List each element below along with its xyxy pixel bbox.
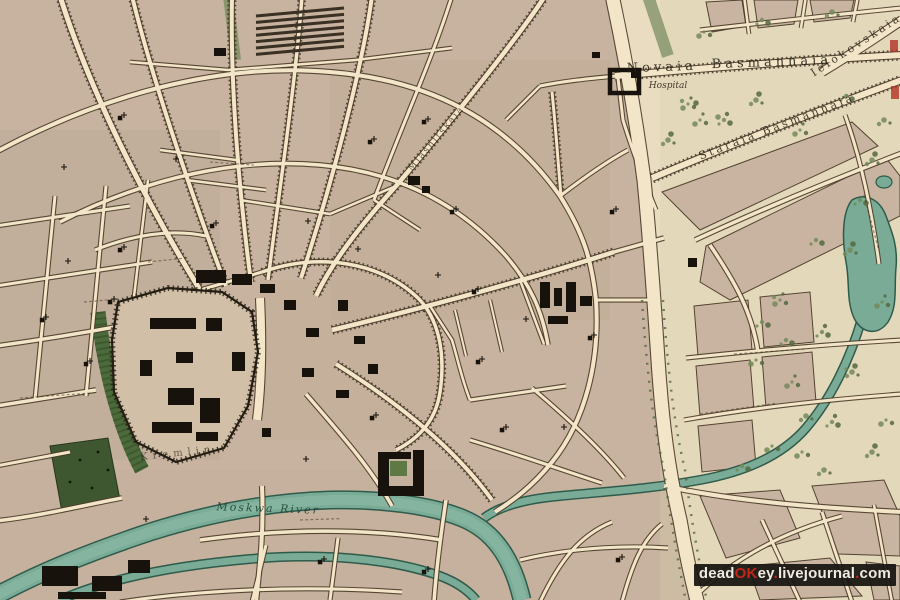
tree (853, 202, 856, 205)
building-wing (413, 450, 424, 496)
building (338, 300, 348, 311)
tree (878, 421, 884, 427)
tree (784, 301, 788, 305)
tree (745, 466, 751, 472)
tree (872, 151, 878, 157)
church-mark (500, 428, 505, 433)
tree (798, 128, 801, 131)
tree (698, 118, 701, 121)
tree (876, 453, 879, 456)
church-mark (108, 300, 113, 305)
tree (781, 292, 784, 295)
tree (796, 383, 800, 387)
tree (722, 118, 726, 122)
watermark-part: OK (735, 565, 758, 582)
building (422, 186, 430, 193)
building (232, 274, 252, 285)
building (232, 352, 245, 371)
tree (725, 112, 729, 116)
map-canvas: NovaiaBasmannaiaHospitalStaraia Basmanna… (0, 0, 900, 600)
tree (760, 18, 764, 22)
church-mark (476, 360, 481, 365)
church-mark (84, 362, 89, 367)
tree (881, 117, 887, 123)
tree (760, 320, 764, 324)
tree (815, 334, 818, 337)
tree (794, 453, 800, 459)
watermark-part: livejournal (778, 565, 855, 582)
city-block (762, 352, 816, 408)
watermark-part: ey (758, 565, 774, 582)
building (302, 368, 314, 377)
pond-arm (876, 176, 892, 188)
building (554, 288, 562, 306)
tree (756, 91, 762, 97)
watermark: deadOKey.livejournal.com (694, 564, 896, 586)
tree (717, 122, 720, 125)
map-label-hospital: Hospital (648, 81, 688, 91)
tree (825, 332, 831, 338)
tree (672, 141, 675, 144)
tree (845, 374, 849, 378)
tree (764, 447, 770, 453)
watermark-part: dead (699, 565, 735, 582)
building (206, 318, 222, 331)
tree (701, 112, 704, 115)
tree (821, 467, 827, 473)
tree (854, 251, 857, 254)
tree (890, 421, 894, 425)
tree (704, 121, 708, 125)
tree (749, 102, 753, 106)
tree (886, 303, 890, 307)
tree (865, 454, 869, 458)
courtyard-garden (390, 461, 407, 476)
tree (755, 324, 758, 327)
scan-artifact (891, 86, 899, 99)
building (196, 270, 226, 283)
scan-artifact (890, 40, 898, 52)
building (688, 258, 697, 267)
building-wing (389, 452, 411, 459)
tree (828, 471, 831, 474)
tree (680, 105, 686, 111)
building (580, 296, 592, 306)
tree (888, 121, 891, 124)
garden-tree-dot (91, 487, 94, 490)
tree (876, 161, 879, 164)
tree (753, 97, 759, 103)
tree (800, 450, 803, 453)
tree (817, 472, 821, 476)
tree (760, 101, 763, 104)
church-mark (588, 336, 593, 341)
tree (692, 121, 698, 127)
tree (772, 295, 776, 299)
building (58, 592, 106, 599)
church-mark (616, 558, 621, 563)
tree (748, 361, 754, 367)
tree (784, 383, 790, 389)
tree (836, 13, 839, 16)
tree (847, 247, 853, 253)
church-mark (368, 140, 373, 145)
tree (689, 96, 692, 99)
garden-tree-dot (97, 451, 100, 454)
tree (765, 322, 771, 328)
tree (883, 294, 886, 297)
building (92, 576, 122, 591)
tree (772, 301, 778, 307)
tree (784, 338, 788, 342)
tree (799, 418, 803, 422)
building (336, 390, 349, 398)
tree (820, 330, 824, 334)
garden-tree-dot (69, 481, 72, 484)
church-mark (422, 120, 427, 125)
building (260, 284, 275, 293)
building (128, 560, 150, 573)
building (150, 318, 196, 329)
tree (708, 33, 712, 37)
tree (858, 198, 862, 202)
building (214, 48, 226, 56)
building (284, 300, 296, 310)
tree (825, 424, 828, 427)
tree (804, 131, 808, 135)
tree (770, 444, 773, 447)
tree (778, 298, 781, 301)
tree (760, 361, 764, 365)
church-mark (450, 210, 455, 215)
building (152, 422, 192, 433)
tree (790, 380, 793, 383)
church-mark (318, 560, 323, 565)
tree (850, 241, 856, 247)
tree (755, 22, 758, 25)
building (168, 388, 194, 405)
church-mark (472, 290, 477, 295)
garden-tree-dot (107, 469, 110, 472)
tree (809, 242, 812, 245)
tree (792, 131, 798, 137)
building (196, 432, 218, 441)
building (540, 282, 550, 308)
tree (735, 468, 738, 471)
building (262, 428, 271, 437)
tree (803, 413, 809, 419)
tree (665, 137, 671, 143)
building (592, 52, 600, 58)
tree (793, 374, 796, 377)
tree (806, 453, 810, 457)
tree (856, 373, 859, 376)
tree (852, 363, 858, 369)
tree (877, 122, 881, 126)
tree (810, 417, 813, 420)
tree (727, 120, 733, 126)
building (354, 336, 365, 344)
tree (830, 420, 834, 424)
building (176, 352, 193, 363)
tree (693, 100, 699, 106)
tree (740, 464, 744, 468)
tree (819, 240, 825, 246)
tree (754, 358, 757, 361)
tree (865, 162, 869, 166)
tree (715, 114, 721, 120)
tree (829, 9, 835, 15)
tree (661, 142, 665, 146)
church-mark (610, 210, 615, 215)
tree (872, 443, 878, 449)
church-mark (210, 224, 215, 229)
tree (814, 238, 818, 242)
garden-tree-dot (79, 459, 82, 462)
tree (843, 252, 847, 256)
church-mark (118, 116, 123, 121)
tree (884, 418, 887, 421)
tree (823, 324, 827, 328)
building (140, 360, 152, 376)
tree (869, 449, 875, 455)
foundling-hospital (378, 450, 424, 496)
tree (844, 367, 847, 370)
watermark-part: com (860, 565, 891, 582)
tree (686, 102, 689, 105)
tree (880, 300, 883, 303)
tree (696, 33, 702, 39)
building (42, 566, 78, 586)
church-mark (118, 248, 123, 253)
tree (789, 340, 795, 346)
map-label-novaia: Novaia (627, 59, 698, 76)
tree (776, 447, 780, 451)
tree (835, 422, 841, 428)
tree (825, 14, 829, 18)
tree (765, 20, 771, 26)
tree (874, 303, 880, 309)
city-block (696, 360, 754, 416)
building (548, 316, 568, 324)
tree (849, 369, 855, 375)
building (408, 176, 420, 185)
tree (668, 131, 674, 137)
church-mark (422, 570, 427, 575)
church-mark (40, 318, 45, 323)
tree (779, 342, 782, 345)
screenshot-root: NovaiaBasmannaiaHospitalStaraia Basmanna… (0, 0, 900, 600)
church-mark (370, 416, 375, 421)
tree (702, 30, 705, 33)
building (200, 398, 220, 423)
tree (833, 414, 837, 418)
building (566, 282, 576, 312)
building (368, 364, 378, 374)
tree (680, 99, 684, 103)
building (306, 328, 319, 337)
tree (869, 157, 875, 163)
